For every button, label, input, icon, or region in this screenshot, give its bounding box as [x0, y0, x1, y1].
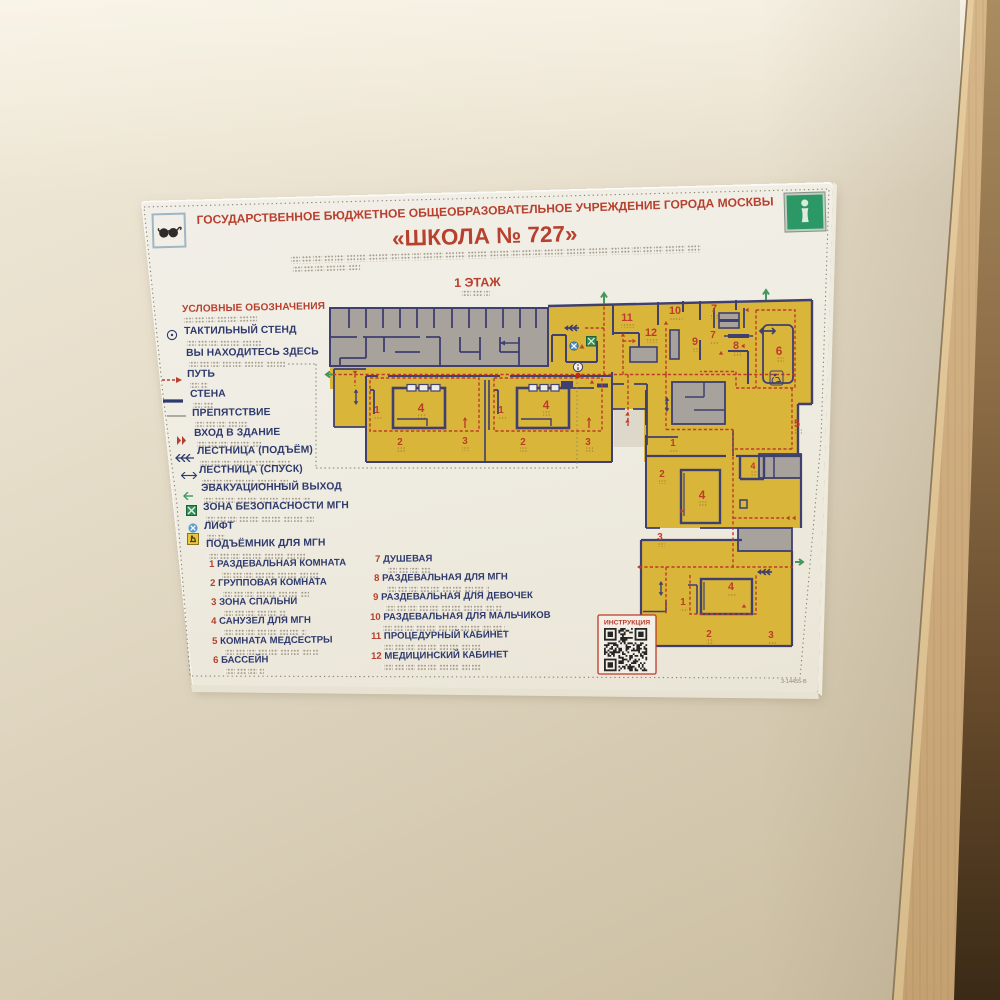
svg-text:4: 4	[728, 581, 734, 593]
svg-text:4: 4	[418, 401, 425, 415]
svg-text:3: 3	[768, 630, 774, 641]
svg-text:2: 2	[397, 437, 403, 448]
svg-text:4: 4	[699, 488, 706, 502]
svg-text:3: 3	[585, 437, 591, 448]
svg-text:2: 2	[659, 469, 665, 480]
svg-text:10: 10	[669, 305, 681, 317]
svg-text:2: 2	[706, 629, 712, 640]
svg-text:12: 12	[645, 327, 657, 339]
svg-text:7: 7	[710, 330, 716, 341]
svg-text:1: 1	[498, 405, 504, 416]
svg-text:9: 9	[692, 336, 698, 348]
svg-text:8: 8	[733, 340, 739, 352]
svg-text:1: 1	[670, 438, 676, 449]
svg-text:2: 2	[520, 437, 526, 448]
svg-text:ИНСТРУКЦИЯ: ИНСТРУКЦИЯ	[604, 620, 650, 627]
svg-text:1: 1	[680, 597, 686, 608]
svg-text:3: 3	[462, 436, 468, 447]
svg-text:3: 3	[657, 532, 663, 543]
svg-text:5: 5	[794, 418, 800, 430]
svg-text:6: 6	[776, 344, 783, 358]
svg-text:7: 7	[711, 303, 717, 315]
svg-text:11: 11	[621, 312, 632, 324]
svg-text:1: 1	[374, 405, 380, 416]
svg-text:4: 4	[751, 461, 756, 471]
svg-text:4: 4	[543, 398, 550, 412]
